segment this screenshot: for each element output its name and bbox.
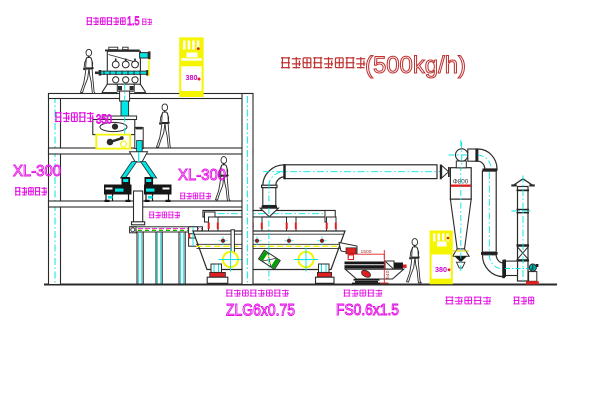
svg-text:380: 380 xyxy=(435,267,447,274)
svg-text:350: 350 xyxy=(96,112,112,127)
svg-text:XL-300: XL-300 xyxy=(178,167,226,184)
svg-text:ZLG6x0.75: ZLG6x0.75 xyxy=(226,301,295,320)
svg-text:FS0.6x1.5: FS0.6x1.5 xyxy=(336,302,399,319)
svg-text:XL-300: XL-300 xyxy=(13,163,61,180)
svg-text:(500kg/h): (500kg/h) xyxy=(365,52,466,79)
svg-text:1500: 1500 xyxy=(361,249,372,255)
svg-text:380: 380 xyxy=(186,75,198,82)
svg-text:1.5: 1.5 xyxy=(127,16,140,28)
svg-text:540: 540 xyxy=(385,270,391,279)
